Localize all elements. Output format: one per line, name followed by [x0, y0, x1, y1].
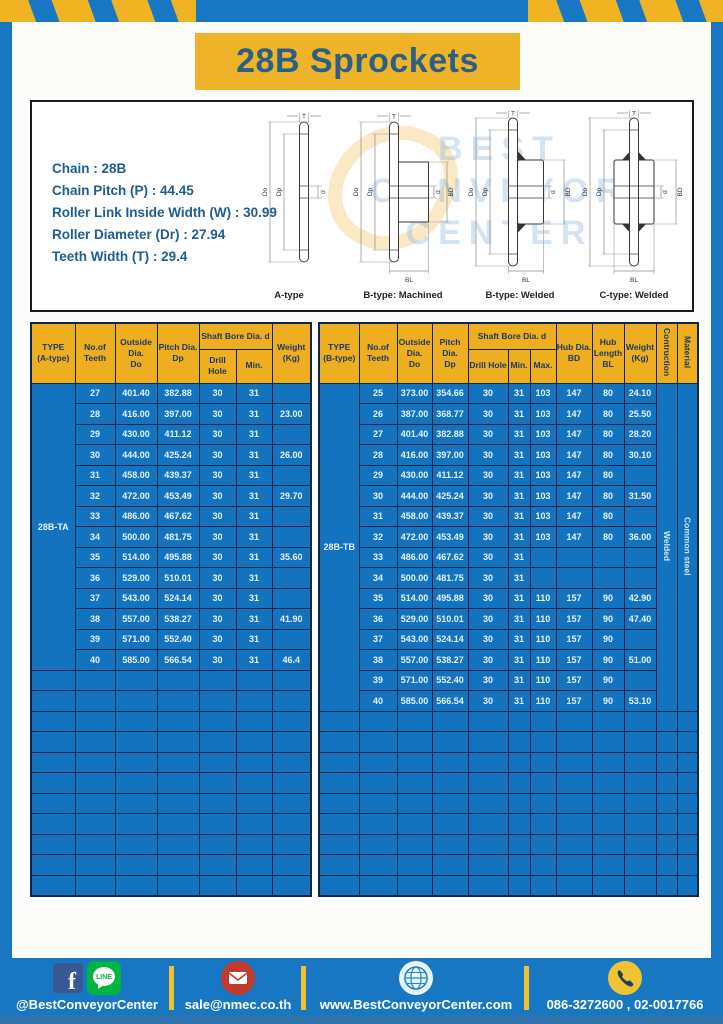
cell: [272, 814, 311, 835]
svg-text:BL: BL: [522, 277, 530, 284]
cell: 42.90: [624, 588, 656, 609]
cell: 35: [359, 588, 397, 609]
cell: 30: [199, 629, 236, 650]
a-table-body: 28B-TA27401.40382.88303128416.00397.0030…: [31, 383, 311, 896]
cell: [199, 793, 236, 814]
empty-row: [319, 732, 698, 753]
cell: [508, 773, 530, 794]
cell: 90: [592, 650, 624, 671]
empty-row: [31, 732, 311, 753]
cell: [157, 814, 199, 835]
footer-divider: [524, 966, 529, 1010]
cell: 31: [508, 404, 530, 425]
col-teeth: No.of Teeth: [75, 323, 115, 383]
svg-text:Dp: Dp: [482, 187, 489, 196]
cell: [115, 711, 157, 732]
cell: [199, 691, 236, 712]
cell: 31: [236, 547, 272, 568]
cell: 80: [592, 445, 624, 466]
cell: 30: [468, 588, 508, 609]
cell: [75, 834, 115, 855]
cell: 30.10: [624, 445, 656, 466]
svg-text:T: T: [632, 111, 636, 118]
empty-row: [31, 834, 311, 855]
cell: [199, 711, 236, 732]
col-material: Material: [677, 323, 698, 383]
cell: 31: [236, 506, 272, 527]
cell: [432, 773, 468, 794]
cell: [31, 875, 75, 896]
cell: 31: [75, 465, 115, 486]
cell: [530, 568, 556, 589]
cell: 35.60: [272, 547, 311, 568]
empty-row: [31, 711, 311, 732]
cell: 30: [199, 527, 236, 548]
cell: [157, 834, 199, 855]
cell: [236, 691, 272, 712]
cell: [592, 855, 624, 876]
cell: [468, 711, 508, 732]
empty-row: [319, 875, 698, 896]
cell: [359, 732, 397, 753]
svg-text:Do: Do: [468, 187, 475, 196]
cell: 31: [236, 650, 272, 671]
cell: [397, 711, 432, 732]
table-row: 33486.00467.623031: [319, 547, 698, 568]
cell: 29: [359, 465, 397, 486]
empty-row: [31, 793, 311, 814]
cell: 30: [199, 404, 236, 425]
cell: 382.88: [432, 424, 468, 445]
cell: [157, 670, 199, 691]
cell: 30: [468, 424, 508, 445]
cell: [75, 752, 115, 773]
cell: 103: [530, 424, 556, 445]
a-table-header: TYPE (A-type) No.of Teeth Outside Dia. D…: [31, 323, 311, 383]
b-type-spec-table: TYPE (B-type) No.of Teeth Outside Dia. D…: [318, 322, 699, 897]
cell: [236, 732, 272, 753]
cell: [432, 793, 468, 814]
cell: [468, 773, 508, 794]
cell: [157, 711, 199, 732]
cell: [272, 732, 311, 753]
cell: [359, 752, 397, 773]
cell: 80: [592, 465, 624, 486]
cell: [530, 711, 556, 732]
cell: 425.24: [432, 486, 468, 507]
cell: 24.10: [624, 383, 656, 404]
empty-row: [31, 670, 311, 691]
table-row: 38557.00538.2730311101579051.00: [319, 650, 698, 671]
cell: 453.49: [432, 527, 468, 548]
cell: 500.00: [397, 568, 432, 589]
footer-email: sale@nmec.co.th: [178, 960, 298, 1012]
cell: [508, 814, 530, 835]
cell: 25: [359, 383, 397, 404]
cell: 31: [508, 670, 530, 691]
cell: 368.77: [432, 404, 468, 425]
cell: 31: [236, 404, 272, 425]
cell: [319, 834, 359, 855]
facebook-icon: f: [53, 963, 83, 993]
cell: 147: [556, 445, 592, 466]
phone-numbers: 086-3272600 , 02-0017766: [547, 997, 704, 1012]
cell: [319, 752, 359, 773]
cell: 31: [236, 527, 272, 548]
cell: [508, 793, 530, 814]
cell: [397, 732, 432, 753]
cell: 411.12: [432, 465, 468, 486]
cell: [199, 875, 236, 896]
cell: [556, 875, 592, 896]
cell: 80: [592, 404, 624, 425]
footer-social: f LINE @BestConveyorCenter: [6, 960, 168, 1012]
cell: 453.49: [157, 486, 199, 507]
cell: 557.00: [397, 650, 432, 671]
cell: [656, 773, 677, 794]
footer-divider: [301, 966, 306, 1010]
catalog-page: { "title": "28B Sprockets", "colors": { …: [0, 0, 723, 1024]
cell: 90: [592, 629, 624, 650]
cell: 103: [530, 527, 556, 548]
svg-text:Dp: Dp: [367, 187, 374, 196]
caption-b-welded: B-type: Welded: [464, 290, 576, 301]
col-weight: Weight (Kg): [272, 323, 311, 383]
cell: [157, 691, 199, 712]
cell: 514.00: [115, 547, 157, 568]
cell: 543.00: [115, 588, 157, 609]
cell: [397, 814, 432, 835]
cell: [556, 773, 592, 794]
cell: [272, 568, 311, 589]
svg-text:BD: BD: [677, 187, 684, 196]
cell: [508, 855, 530, 876]
cell: 354.66: [432, 383, 468, 404]
table-row: 39571.00552.40303111015790: [319, 670, 698, 691]
cell: 36: [75, 568, 115, 589]
cell: 31: [508, 650, 530, 671]
hazard-stripes-right: [528, 0, 723, 22]
cell: 495.88: [432, 588, 468, 609]
cell: [31, 670, 75, 691]
cell: 110: [530, 629, 556, 650]
cell: 510.01: [157, 568, 199, 589]
sprocket-diagram-c-welded: T Do Dp d BD BL: [580, 108, 688, 301]
cell: [530, 834, 556, 855]
col-hub-length: Hub Length BL: [592, 323, 624, 383]
empty-row: [319, 834, 698, 855]
cell: 23.00: [272, 404, 311, 425]
type-label-cell: 28B-TA: [31, 383, 75, 670]
table-row: 26387.00368.7730311031478025.50: [319, 404, 698, 425]
empty-row: [319, 711, 698, 732]
cell: 30: [468, 670, 508, 691]
cell: [656, 732, 677, 753]
cell: 157: [556, 670, 592, 691]
cell: 30: [199, 506, 236, 527]
cell: 30: [468, 486, 508, 507]
cell: 538.27: [432, 650, 468, 671]
cell: [359, 773, 397, 794]
empty-row: [319, 855, 698, 876]
cell: 80: [592, 506, 624, 527]
empty-row: [31, 875, 311, 896]
cell: 538.27: [157, 609, 199, 630]
cell: 51.00: [624, 650, 656, 671]
cell: [397, 875, 432, 896]
cell: 147: [556, 404, 592, 425]
cell: [319, 773, 359, 794]
cell: [556, 752, 592, 773]
svg-text:BD: BD: [565, 187, 572, 196]
cell: [236, 752, 272, 773]
cell: 31: [236, 568, 272, 589]
col-type: TYPE (A-type): [31, 323, 75, 383]
cell: [432, 732, 468, 753]
document-page: 28B Sprockets BEST CONVEYOR CENTER Chain…: [12, 22, 711, 958]
cell: [556, 732, 592, 753]
footer-website: www.BestConveyorCenter.com: [310, 960, 522, 1012]
cell: 30: [199, 547, 236, 568]
cell: 30: [468, 445, 508, 466]
cell: [624, 711, 656, 732]
cell: 147: [556, 424, 592, 445]
cell: [624, 568, 656, 589]
cell: [157, 752, 199, 773]
cell: 486.00: [397, 547, 432, 568]
empty-row: [31, 814, 311, 835]
cell: 26: [359, 404, 397, 425]
cell: [115, 814, 157, 835]
cell: 30: [468, 609, 508, 630]
cell: [624, 814, 656, 835]
cell: 495.88: [157, 547, 199, 568]
col-drill-hole: Drill Hole: [468, 349, 508, 383]
cell: [359, 793, 397, 814]
sprocket-diagram-a-type: T Do Dp d A-type: [244, 108, 334, 301]
empty-row: [31, 752, 311, 773]
cell: [319, 814, 359, 835]
cell: [31, 814, 75, 835]
cell: [397, 855, 432, 876]
cell: [556, 547, 592, 568]
footer-phone: 086-3272600 , 02-0017766: [532, 960, 718, 1012]
cell: [677, 711, 698, 732]
cell: 510.01: [432, 609, 468, 630]
cell: [677, 773, 698, 794]
cell: [31, 793, 75, 814]
cell: 90: [592, 588, 624, 609]
cell: [624, 629, 656, 650]
cell: [530, 773, 556, 794]
cell: [319, 875, 359, 896]
cell: [656, 875, 677, 896]
cell: 458.00: [115, 465, 157, 486]
cell: 27: [75, 383, 115, 404]
cell: [272, 691, 311, 712]
a-type-spec-table: TYPE (A-type) No.of Teeth Outside Dia. D…: [30, 322, 312, 897]
cell: 430.00: [115, 424, 157, 445]
cell: 472.00: [115, 486, 157, 507]
cell: [31, 732, 75, 753]
material-cell: Common steel: [677, 383, 698, 711]
cell: [556, 568, 592, 589]
cell: [530, 855, 556, 876]
cell: [31, 834, 75, 855]
cell: 387.00: [397, 404, 432, 425]
cell: 416.00: [397, 445, 432, 466]
cell: [115, 855, 157, 876]
cell: [272, 383, 311, 404]
cell: 38: [359, 650, 397, 671]
cell: 90: [592, 670, 624, 691]
cell: [468, 855, 508, 876]
cell: [397, 773, 432, 794]
cell: 30: [468, 629, 508, 650]
cell: 103: [530, 465, 556, 486]
cell: [432, 875, 468, 896]
cell: [157, 793, 199, 814]
cell: [115, 752, 157, 773]
cell: [677, 875, 698, 896]
empty-row: [319, 752, 698, 773]
cell: [624, 834, 656, 855]
top-hazard-bar: [0, 0, 723, 22]
cell: [272, 629, 311, 650]
type-label-cell: 28B-TB: [319, 383, 359, 711]
cell: 529.00: [115, 568, 157, 589]
cell: [75, 773, 115, 794]
col-pitch-dia: Pitch Dia. Dp: [432, 323, 468, 383]
cell: [508, 711, 530, 732]
cell: 47.40: [624, 609, 656, 630]
phone-icon: [608, 961, 642, 995]
cell: [592, 793, 624, 814]
cell: 80: [592, 486, 624, 507]
cell: [592, 568, 624, 589]
cell: 30: [199, 609, 236, 630]
cell: 110: [530, 670, 556, 691]
cell: [319, 711, 359, 732]
cell: [624, 752, 656, 773]
cell: 585.00: [397, 691, 432, 712]
table-row: 37543.00524.14303111015790: [319, 629, 698, 650]
cell: 103: [530, 404, 556, 425]
cell: 28: [75, 404, 115, 425]
cell: [359, 834, 397, 855]
cell: [236, 814, 272, 835]
cell: 110: [530, 650, 556, 671]
cell: 524.14: [432, 629, 468, 650]
empty-row: [319, 793, 698, 814]
cell: [75, 855, 115, 876]
cell: 25.50: [624, 404, 656, 425]
cell: [656, 814, 677, 835]
cell: 157: [556, 629, 592, 650]
table-row: 31458.00439.37303110314780: [319, 506, 698, 527]
cell: 35: [75, 547, 115, 568]
cell: [677, 814, 698, 835]
cell: 31: [236, 383, 272, 404]
table-row: 34500.00481.753031: [319, 568, 698, 589]
cell: [272, 875, 311, 896]
cell: [556, 711, 592, 732]
cell: 39: [75, 629, 115, 650]
cell: [656, 711, 677, 732]
cell: [115, 793, 157, 814]
cell: 30: [468, 506, 508, 527]
cell: 382.88: [157, 383, 199, 404]
table-row: 27401.40382.8830311031478028.20: [319, 424, 698, 445]
cell: [31, 855, 75, 876]
table-row: 29430.00411.12303110314780: [319, 465, 698, 486]
cell: 147: [556, 383, 592, 404]
svg-text:f: f: [68, 969, 77, 993]
cell: [556, 814, 592, 835]
cell: [508, 732, 530, 753]
cell: 147: [556, 506, 592, 527]
cell: [530, 732, 556, 753]
cell: [656, 834, 677, 855]
cell: 30: [199, 465, 236, 486]
cell: [75, 793, 115, 814]
col-weight: Weight (Kg): [624, 323, 656, 383]
svg-text:Dp: Dp: [276, 187, 283, 196]
cell: 36: [359, 609, 397, 630]
empty-row: [31, 855, 311, 876]
cell: [468, 752, 508, 773]
cell: [592, 875, 624, 896]
cell: 147: [556, 527, 592, 548]
cell: [31, 752, 75, 773]
c-welded-drawing: T Do Dp d BD BL: [580, 108, 688, 284]
cell: 30: [468, 465, 508, 486]
svg-text:BL: BL: [630, 277, 638, 284]
cell: 103: [530, 486, 556, 507]
cell: 30: [199, 486, 236, 507]
spec-diagram-box: BEST CONVEYOR CENTER Chain : 28B Chain P…: [30, 100, 694, 312]
col-shaft-bore: Shaft Bore Dia. d: [468, 323, 556, 349]
cell: [677, 752, 698, 773]
table-row: 28416.00397.0030311031478030.10: [319, 445, 698, 466]
cell: [319, 732, 359, 753]
cell: [677, 793, 698, 814]
svg-text:Do: Do: [262, 187, 269, 196]
cell: 40: [359, 691, 397, 712]
cell: 481.75: [157, 527, 199, 548]
cell: 31: [508, 424, 530, 445]
b-machined-drawing: T Do Dp d BD BL: [347, 108, 459, 284]
cell: 30: [468, 404, 508, 425]
cell: 401.40: [397, 424, 432, 445]
cell: 31: [236, 588, 272, 609]
cell: 31: [359, 506, 397, 527]
cell: 41.90: [272, 609, 311, 630]
cell: 39: [359, 670, 397, 691]
b-table-header: TYPE (B-type) No.of Teeth Outside Dia. D…: [319, 323, 698, 383]
col-construction: Contruction: [656, 323, 677, 383]
empty-row: [319, 773, 698, 794]
footer-contact-bar: f LINE @BestConveyorCenter sale@nmec.co.…: [0, 958, 723, 1015]
cell: [397, 834, 432, 855]
cell: 31: [236, 629, 272, 650]
svg-text:Do: Do: [582, 187, 589, 196]
col-drill-hole: Drill Hole: [199, 349, 236, 383]
cell: 30: [199, 568, 236, 589]
cell: 53.10: [624, 691, 656, 712]
cell: [115, 834, 157, 855]
cell: 552.40: [432, 670, 468, 691]
